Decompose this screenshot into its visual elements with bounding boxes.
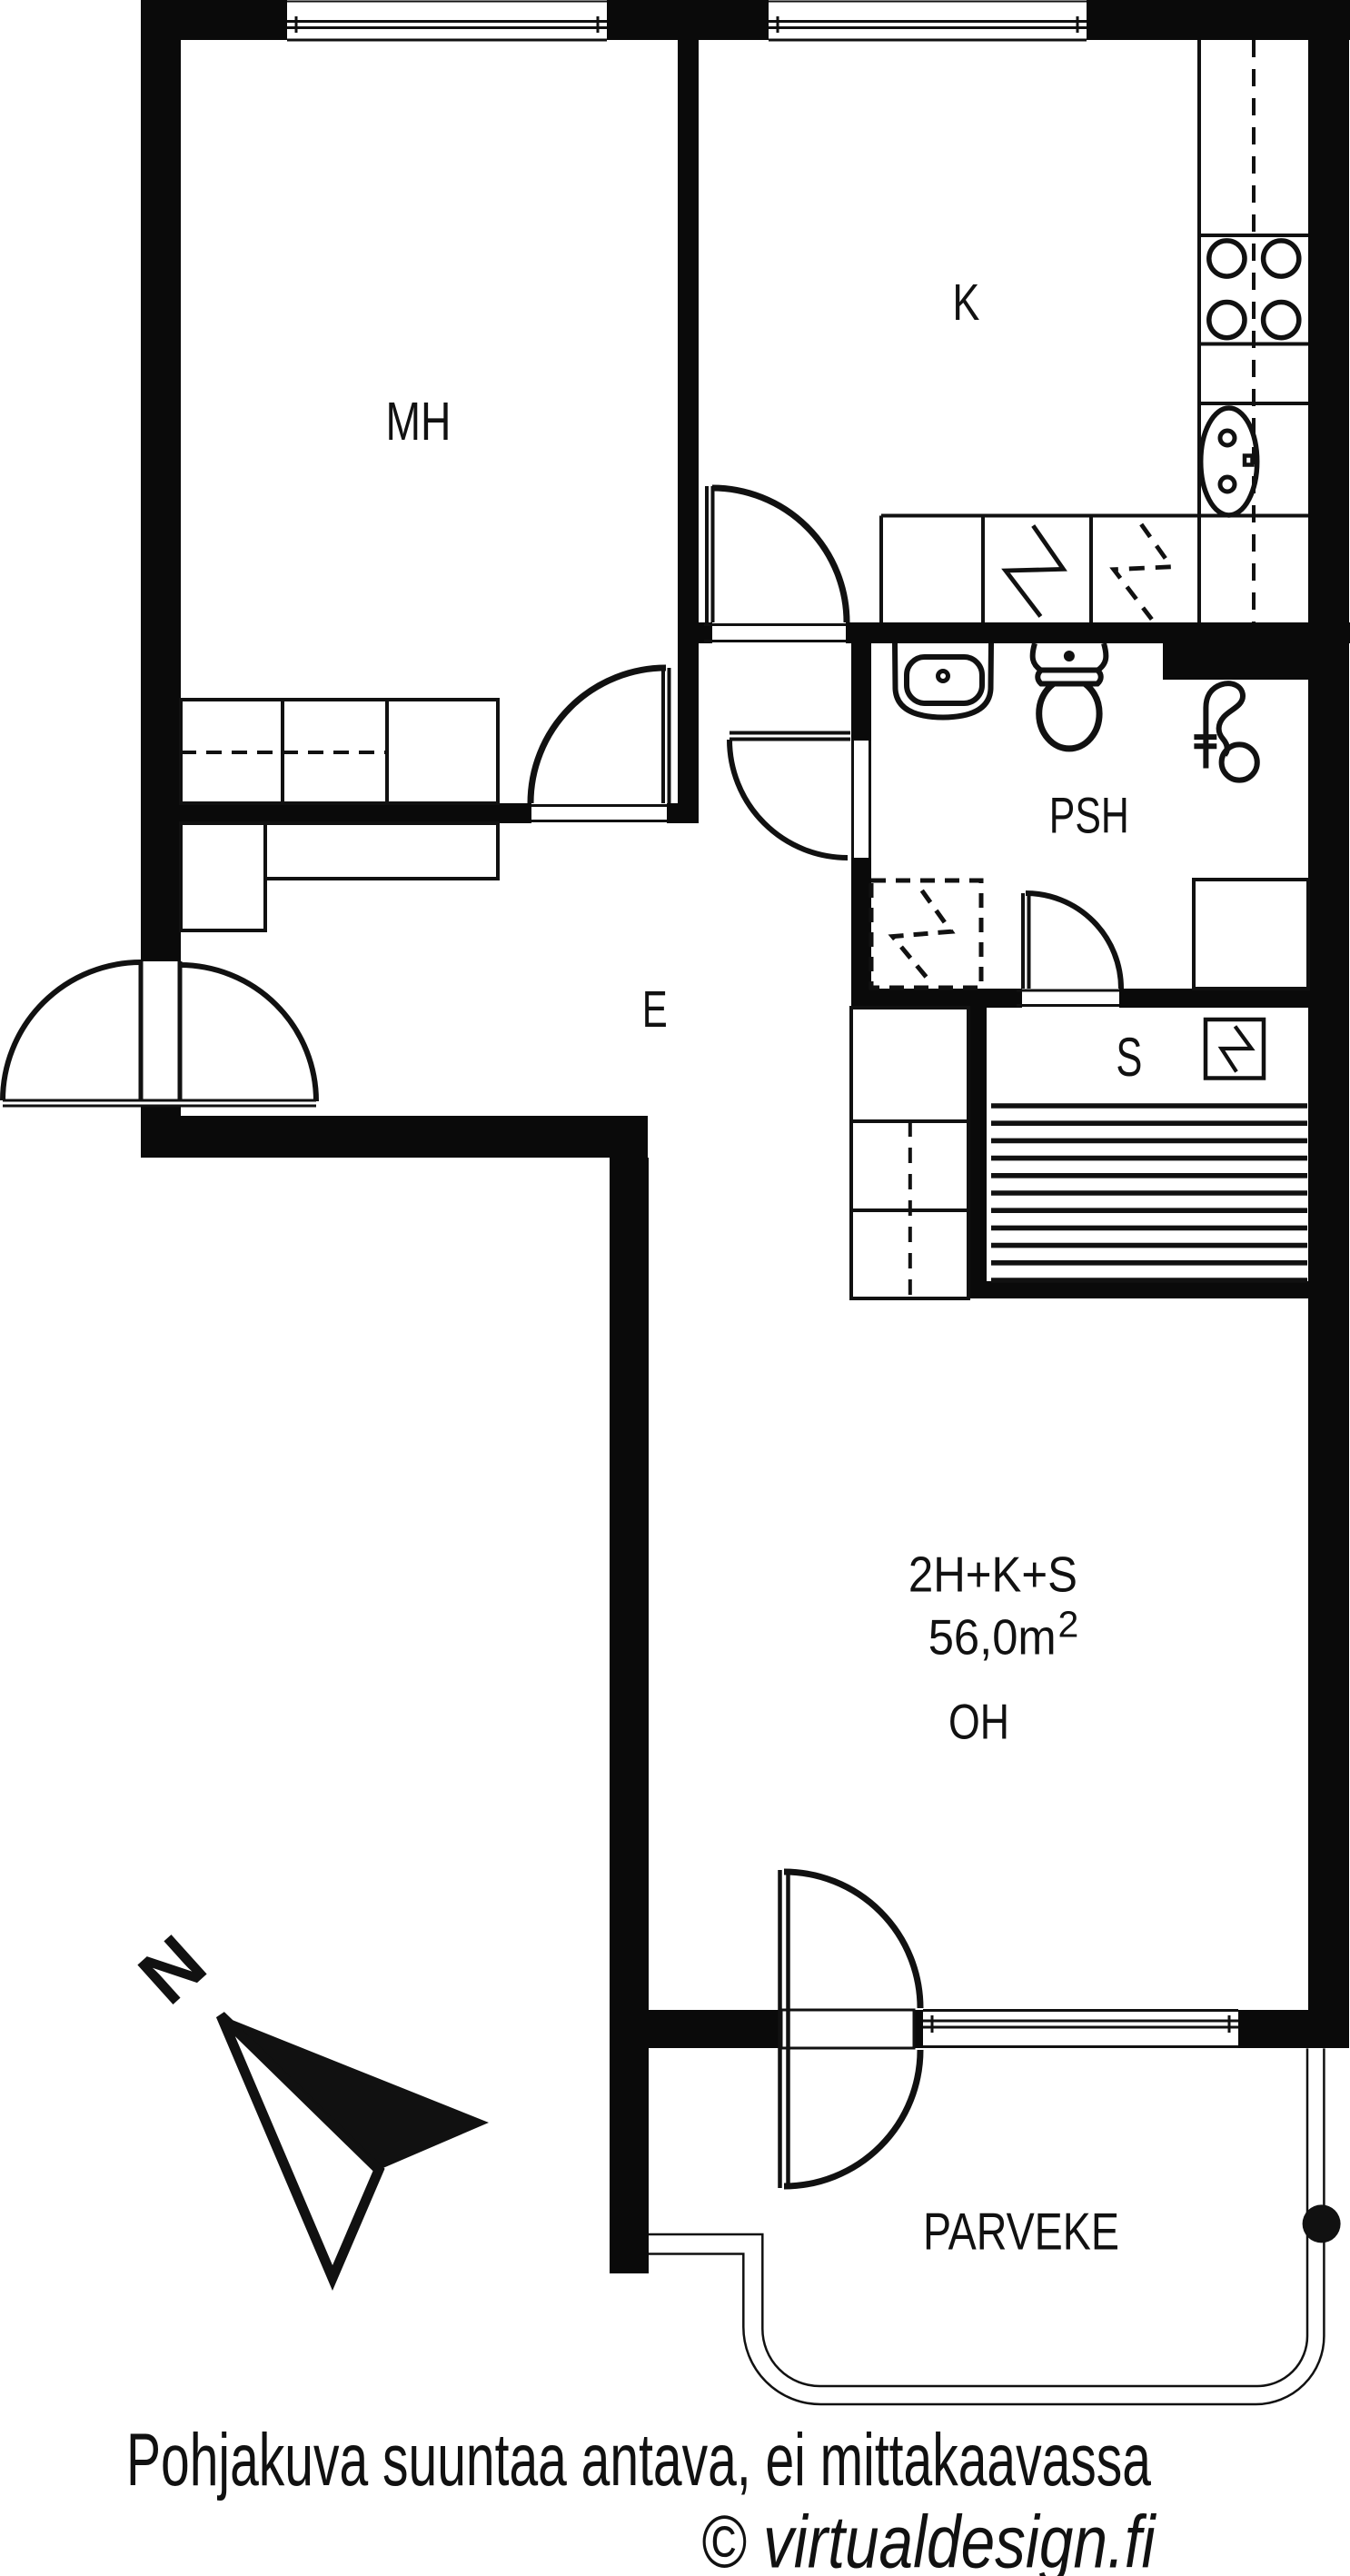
svg-text:OH: OH bbox=[948, 1693, 1009, 1749]
svg-text:K: K bbox=[952, 274, 979, 332]
svg-text:2: 2 bbox=[1057, 1604, 1078, 1646]
svg-text:© virtualdesign.fi: © virtualdesign.fi bbox=[701, 2501, 1157, 2576]
svg-text:56,0m: 56,0m bbox=[928, 1609, 1057, 1666]
svg-text:Pohjakuva suuntaa antava, ei m: Pohjakuva suuntaa antava, ei mittakaavas… bbox=[126, 2419, 1151, 2501]
svg-text:MH: MH bbox=[386, 391, 452, 452]
svg-text:E: E bbox=[642, 980, 668, 1038]
svg-text:PARVEKE: PARVEKE bbox=[923, 2203, 1119, 2261]
svg-text:S: S bbox=[1116, 1027, 1142, 1088]
svg-text:PSH: PSH bbox=[1049, 787, 1129, 844]
svg-text:2H+K+S: 2H+K+S bbox=[908, 1547, 1077, 1603]
